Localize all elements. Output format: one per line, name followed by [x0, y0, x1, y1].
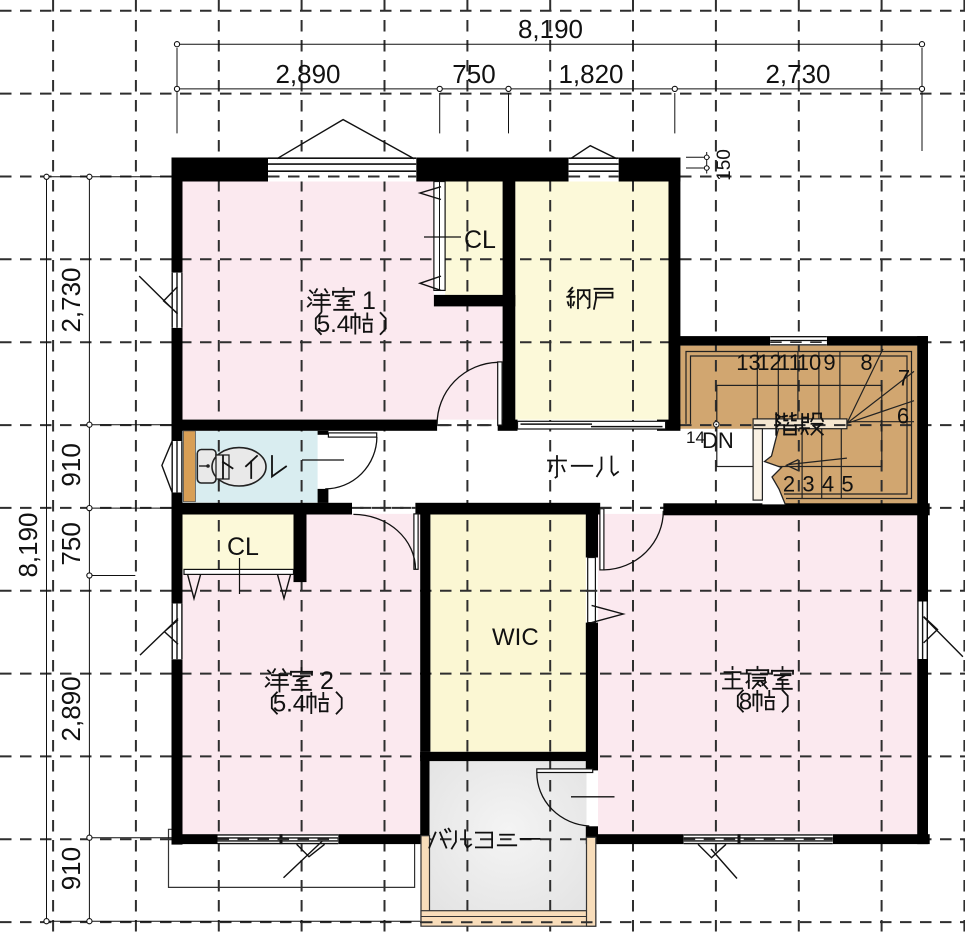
svg-text:4: 4 — [337, 311, 350, 338]
svg-text:2,730: 2,730 — [765, 59, 830, 89]
svg-text:WIC: WIC — [492, 624, 539, 651]
svg-text:10: 10 — [797, 350, 821, 375]
svg-text:750: 750 — [452, 59, 495, 89]
svg-text:1: 1 — [362, 287, 376, 315]
svg-text:5: 5 — [317, 311, 330, 338]
svg-text:3: 3 — [802, 472, 814, 497]
svg-text:DN: DN — [702, 428, 734, 453]
svg-text:150: 150 — [714, 149, 735, 181]
svg-text:2,890: 2,890 — [275, 59, 340, 89]
svg-text:8: 8 — [739, 688, 752, 715]
svg-text:2,890: 2,890 — [56, 676, 86, 741]
svg-text:5: 5 — [841, 472, 853, 497]
svg-text:2: 2 — [320, 667, 334, 695]
svg-text:750: 750 — [56, 522, 86, 565]
svg-text:2: 2 — [783, 472, 795, 497]
svg-text:CL: CL — [464, 226, 496, 254]
svg-text:8,190: 8,190 — [13, 512, 43, 577]
svg-text:8,190: 8,190 — [518, 14, 583, 44]
svg-text:CL: CL — [227, 533, 259, 561]
svg-text:8: 8 — [860, 350, 872, 375]
svg-text:9: 9 — [823, 350, 835, 375]
svg-text:6: 6 — [897, 404, 909, 429]
svg-text:7: 7 — [898, 366, 910, 391]
svg-text:1,820: 1,820 — [558, 59, 623, 89]
svg-text:910: 910 — [56, 443, 86, 486]
svg-text:910: 910 — [56, 847, 86, 890]
svg-text:5: 5 — [273, 690, 286, 717]
svg-text:2,730: 2,730 — [56, 267, 86, 332]
svg-text:4: 4 — [822, 472, 834, 497]
svg-text:4: 4 — [293, 690, 306, 717]
